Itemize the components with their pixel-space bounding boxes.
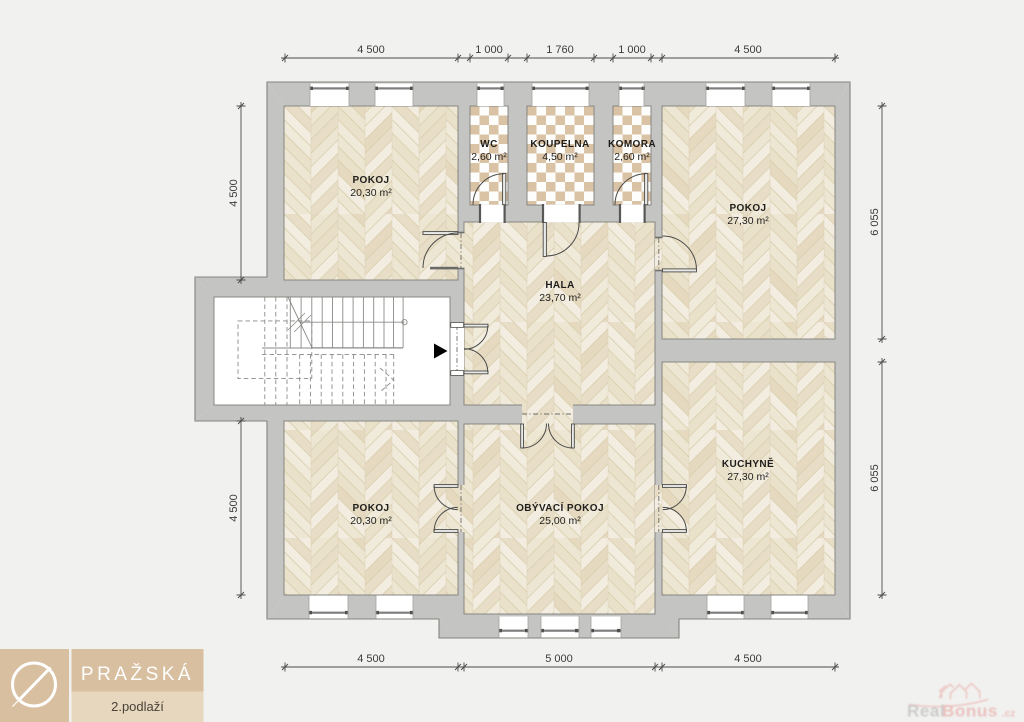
svg-text:2,60 m²: 2,60 m²: [614, 151, 650, 163]
svg-text:1 760: 1 760: [546, 44, 574, 56]
svg-text:Real: Real: [907, 702, 945, 721]
svg-text:KOMORA: KOMORA: [608, 139, 656, 150]
svg-text:4 500: 4 500: [228, 494, 240, 522]
svg-text:4 500: 4 500: [228, 179, 240, 207]
svg-text:6 055: 6 055: [869, 208, 881, 236]
svg-text:2,60 m²: 2,60 m²: [471, 151, 507, 163]
svg-text:5 000: 5 000: [545, 653, 573, 665]
svg-text:6 055: 6 055: [869, 464, 881, 492]
svg-text:POKOJ: POKOJ: [352, 175, 389, 186]
svg-text:1 000: 1 000: [475, 44, 503, 56]
svg-text:PRAŽSKÁ: PRAŽSKÁ: [81, 663, 194, 685]
svg-text:WC: WC: [480, 139, 497, 150]
svg-text:27,30 m²: 27,30 m²: [727, 215, 769, 227]
svg-text:4 500: 4 500: [357, 44, 385, 56]
svg-text:20,30 m²: 20,30 m²: [350, 515, 392, 527]
svg-text:4,50 m²: 4,50 m²: [542, 151, 578, 163]
svg-text:23,70 m²: 23,70 m²: [539, 292, 581, 304]
svg-text:27,30 m²: 27,30 m²: [727, 471, 769, 483]
svg-text:Bonus: Bonus: [942, 702, 998, 721]
svg-text:.cz: .cz: [1002, 709, 1015, 720]
svg-text:HALA: HALA: [545, 280, 574, 291]
svg-text:OBÝVACÍ POKOJ: OBÝVACÍ POKOJ: [516, 501, 604, 514]
svg-text:4 500: 4 500: [734, 44, 762, 56]
svg-text:KOUPELNA: KOUPELNA: [530, 139, 589, 150]
svg-text:20,30 m²: 20,30 m²: [350, 187, 392, 199]
svg-text:POKOJ: POKOJ: [729, 203, 766, 214]
svg-text:4 500: 4 500: [357, 653, 385, 665]
svg-text:KUCHYNĚ: KUCHYNĚ: [722, 457, 774, 470]
svg-text:25,00 m²: 25,00 m²: [539, 515, 581, 527]
svg-text:2.podlaží: 2.podlaží: [111, 699, 164, 714]
svg-text:4 500: 4 500: [734, 653, 762, 665]
svg-text:POKOJ: POKOJ: [352, 503, 389, 514]
svg-text:1 000: 1 000: [618, 44, 646, 56]
